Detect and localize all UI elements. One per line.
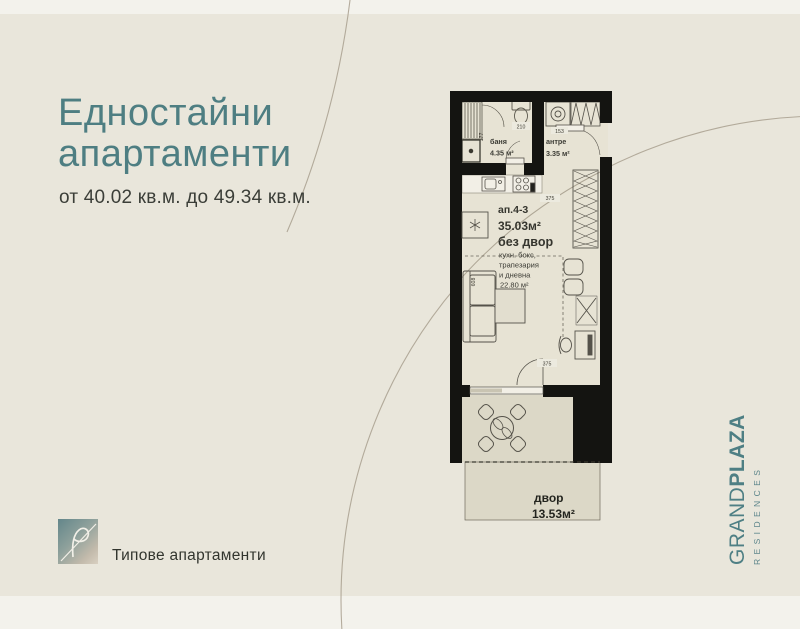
brand-name: GRANDPLAZA [727,405,749,565]
entry-name: антре [546,137,566,146]
brochure-page: Едностайни апартаменти от 40.02 кв.м. до… [0,0,800,629]
kitchen-counter [462,175,542,193]
brand-vertical: GRANDPLAZA RESIDENCES [727,405,771,565]
page-title-line2: апартаменти [58,134,292,175]
unit-total-area: 35.03м² [498,219,541,233]
unit-note: без двор [498,235,553,249]
brand-plaza: PLAZA [726,414,749,487]
unit-desc-line1: кухн. бокс, [499,251,536,260]
dim-153: 153 [555,129,564,135]
page-subtitle: от 40.02 кв.м. до 49.34 кв.м. [59,187,311,209]
floor-plan: 210 177 153 375 608 375 баня 4.35 м² ант… [450,85,620,535]
logo-p-glyph [73,528,89,557]
coffee-table [495,289,525,323]
yard-name: двор [534,491,564,505]
dim-177: 177 [479,133,485,142]
unit-desc-line2: трапезария [499,261,539,270]
page-title-line1: Едностайни [58,93,292,134]
dim-210: 210 [517,124,526,130]
dim-375-bottom: 375 [543,362,552,368]
footer-label: Типове апартаменти [112,547,266,565]
unit-room-area: 22.80 м² [500,281,529,290]
terrace-sliding-door [470,387,543,394]
yard-area: 13.53м² [532,507,575,521]
bath-area: 4.35 м² [490,149,514,158]
brand-residences: RESIDENCES [752,405,762,565]
floor-plan-svg: 210 177 153 375 608 375 баня 4.35 м² ант… [450,85,620,535]
brand-logo [58,519,98,564]
brand-grand: GRAND [726,487,749,565]
dim-608: 608 [471,278,477,287]
page-title: Едностайни апартаменти [58,93,292,175]
brand-logo-glyph [58,519,98,564]
bath-name: баня [490,137,507,146]
unit-desc-line3: и дневна [499,271,531,280]
entry-area: 3.35 м² [546,149,570,158]
unit-number: ап.4-3 [498,204,528,216]
dim-375-top: 375 [546,196,555,202]
